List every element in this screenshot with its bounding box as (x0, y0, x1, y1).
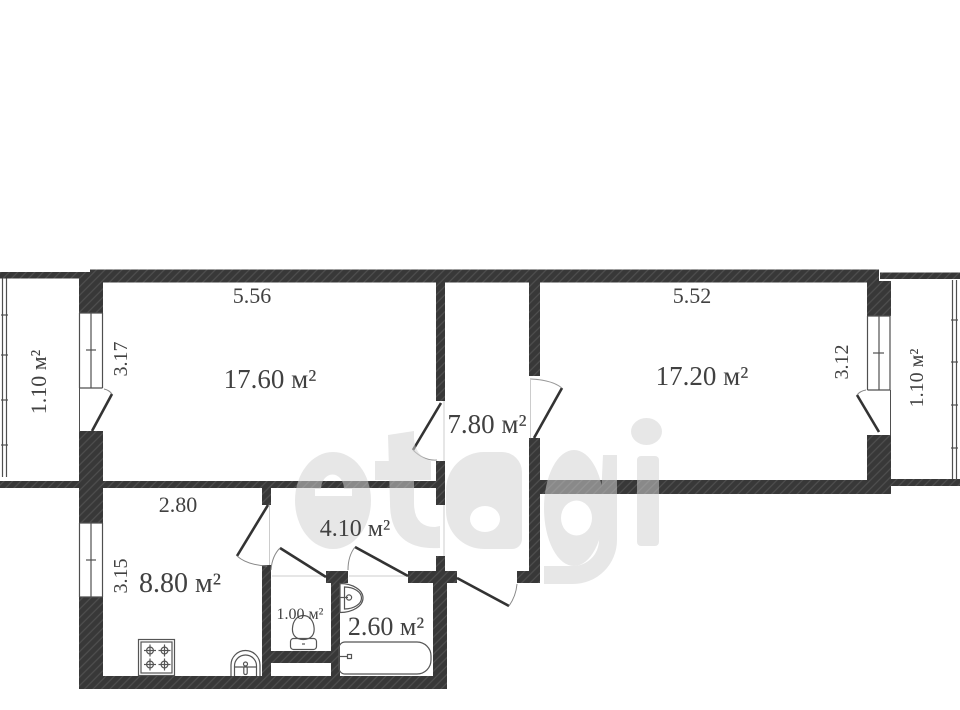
svg-text:17.20 м²: 17.20 м² (656, 361, 749, 391)
svg-text:1.10 м²: 1.10 м² (906, 349, 928, 408)
svg-text:7.80 м²: 7.80 м² (447, 409, 526, 439)
svg-text:3.17: 3.17 (110, 342, 132, 377)
svg-text:2.60 м²: 2.60 м² (348, 612, 424, 641)
svg-text:1.10 м²: 1.10 м² (26, 349, 51, 414)
svg-text:1.00 м²: 1.00 м² (277, 606, 324, 623)
svg-text:4.10 м²: 4.10 м² (320, 516, 390, 542)
svg-text:2.80: 2.80 (159, 492, 198, 517)
svg-text:17.60 м²: 17.60 м² (224, 364, 317, 394)
svg-text:8.80 м²: 8.80 м² (139, 568, 221, 599)
svg-text:5.56: 5.56 (233, 283, 272, 308)
svg-text:3.12: 3.12 (831, 345, 853, 380)
svg-text:3.15: 3.15 (110, 559, 132, 594)
svg-text:5.52: 5.52 (673, 283, 712, 308)
